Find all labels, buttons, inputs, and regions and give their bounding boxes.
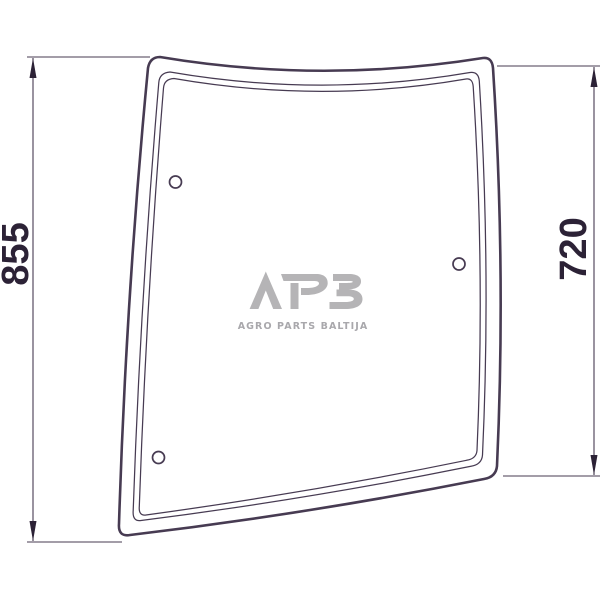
glass-inner-contour-1 [133,72,486,521]
mounting-hole-right [453,258,465,270]
glass-panel [119,57,501,535]
apb-logo-glyphs [250,272,363,310]
logo-letter-p [281,274,328,309]
arrowhead-up-left [30,58,37,78]
mounting-hole-top-left [170,176,182,188]
dimension-label-855: 855 [0,222,37,285]
glass-outer-contour [119,57,501,535]
apb-watermark: APB AGRO PARTS BALTIJA [238,272,369,333]
logo-letter-a [250,272,282,310]
glass-inner-contour-2 [139,79,480,516]
dimension-right: 720 [497,66,600,476]
arrowhead-up-right [591,67,598,87]
technical-drawing-canvas: APB AGRO PARTS BALTIJA 855 [0,0,600,600]
logo-letter-b [330,274,363,309]
arrowhead-down-right [591,455,598,475]
glass-part-drawing: APB AGRO PARTS BALTIJA 855 [0,0,600,600]
mounting-hole-bottom-left [153,452,165,464]
dimension-left: 855 [0,57,150,542]
dimension-label-720: 720 [553,217,595,280]
arrowhead-down-left [30,521,37,541]
logo-tagline: AGRO PARTS BALTIJA [238,321,369,332]
